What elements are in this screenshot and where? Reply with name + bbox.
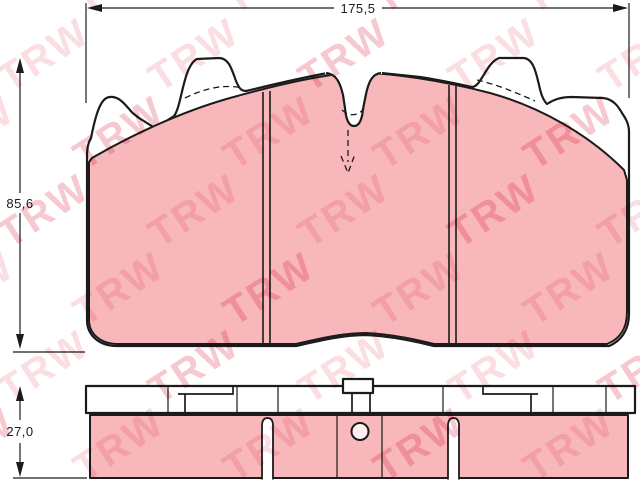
mounting-hole bbox=[352, 423, 369, 440]
groove-slot-left bbox=[262, 418, 273, 480]
dimension-height: 85,6 bbox=[6, 58, 85, 352]
arrowhead-left bbox=[87, 4, 102, 12]
brake-pad-technical-drawing: 175,5 85,6 bbox=[0, 0, 640, 480]
arrowhead-right bbox=[613, 4, 628, 12]
center-tab bbox=[343, 379, 373, 393]
arrowhead-down bbox=[16, 462, 24, 477]
dimension-width-label: 175,5 bbox=[340, 1, 375, 16]
front-view bbox=[87, 58, 629, 346]
edge-view bbox=[86, 379, 635, 480]
arrowhead-up bbox=[16, 386, 24, 401]
arrowhead-down bbox=[16, 334, 24, 349]
dimension-thickness-label: 27,0 bbox=[6, 424, 33, 439]
arrowhead-up bbox=[16, 58, 24, 73]
dimension-height-label: 85,6 bbox=[6, 196, 33, 211]
dimension-thickness: 27,0 bbox=[6, 386, 87, 478]
groove-slot-right bbox=[448, 418, 459, 480]
drawing-svg: 175,5 85,6 bbox=[0, 0, 640, 480]
